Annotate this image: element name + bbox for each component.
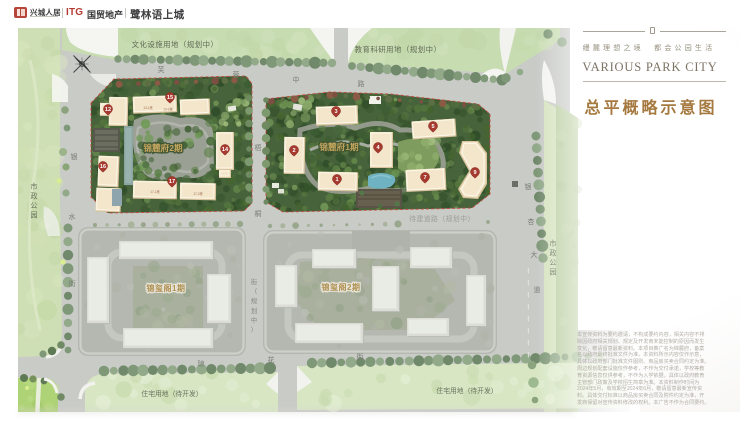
svg-text:2: 2 [292, 148, 295, 154]
svg-text:）: ） [251, 326, 257, 334]
svg-text:中: 中 [293, 75, 300, 84]
svg-text:3: 3 [334, 109, 337, 115]
svg-text:水: 水 [69, 212, 76, 221]
svg-text:划: 划 [251, 306, 257, 315]
svg-text:9: 9 [473, 170, 476, 176]
svg-text:锦麓府1期: 锦麓府1期 [319, 141, 359, 152]
svg-text:待建道路（规划中）: 待建道路（规划中） [409, 214, 475, 223]
svg-text:锦玺阁2期: 锦玺阁2期 [322, 282, 361, 292]
svg-text:规: 规 [251, 296, 258, 305]
svg-text:中: 中 [251, 315, 257, 324]
svg-text:琼: 琼 [198, 359, 205, 368]
svg-text:街: 街 [69, 279, 76, 288]
svg-text:住宅用地（待开发）: 住宅用地（待开发） [141, 389, 202, 398]
svg-text:5: 5 [431, 124, 434, 130]
svg-text:花: 花 [268, 355, 275, 364]
svg-text:街: 街 [357, 352, 364, 361]
svg-text:银: 银 [525, 182, 532, 191]
svg-text:政: 政 [30, 192, 37, 201]
svg-text:16: 16 [100, 164, 106, 170]
svg-text:银: 银 [71, 152, 78, 161]
svg-text:文化设施用地（规划中）: 文化设施用地（规划中） [132, 40, 219, 49]
svg-text:7: 7 [423, 175, 426, 181]
svg-text:锦玺阁1期: 锦玺阁1期 [147, 283, 186, 293]
svg-text:园: 园 [30, 211, 37, 220]
svg-text:公: 公 [30, 201, 37, 210]
svg-text:梧: 梧 [255, 143, 262, 152]
svg-text:街: 街 [251, 277, 258, 286]
svg-text:蓉: 蓉 [233, 70, 240, 79]
svg-text:杏: 杏 [528, 217, 535, 226]
svg-text:路: 路 [358, 79, 365, 88]
svg-text:住宅用地（待开发）: 住宅用地（待开发） [436, 386, 497, 395]
svg-text:17: 17 [169, 179, 175, 185]
svg-text:教育科研用地（规划中）: 教育科研用地（规划中） [355, 45, 442, 54]
svg-text:芙: 芙 [158, 65, 165, 74]
svg-text:1: 1 [335, 177, 338, 183]
svg-text:（: （ [251, 288, 258, 296]
svg-text:市: 市 [30, 182, 37, 191]
svg-text:15: 15 [167, 95, 173, 101]
svg-text:锦麓府2期: 锦麓府2期 [143, 142, 183, 153]
svg-text:14: 14 [222, 147, 229, 153]
svg-text:桐: 桐 [255, 209, 262, 218]
svg-text:12: 12 [105, 107, 111, 113]
